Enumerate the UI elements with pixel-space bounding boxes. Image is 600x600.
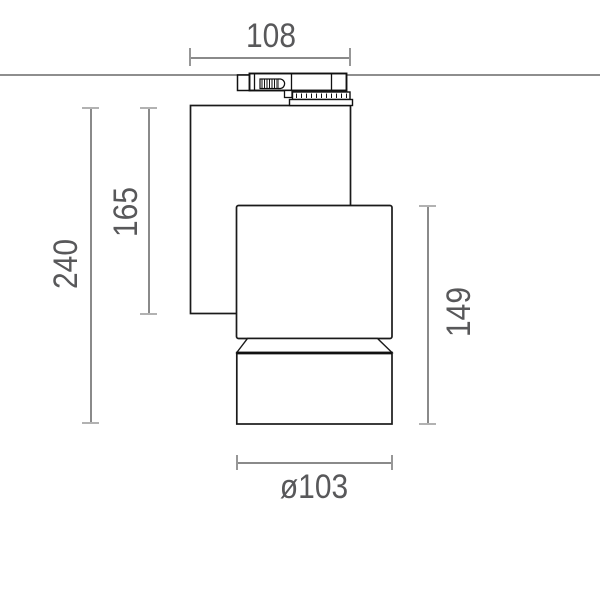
- dim-track-width-tick-left: [189, 48, 191, 66]
- dim-housing-height-tick-bottom: [140, 313, 157, 315]
- dim-track-width-label: 108: [271, 36, 328, 70]
- dim-barrel-diameter-tick-right: [391, 455, 393, 470]
- dim-head-height-line: [427, 206, 429, 424]
- screw-tip: [279, 79, 285, 89]
- dimension-drawing-canvas: 108 240 165 149 ø103: [0, 0, 600, 600]
- lens-ring: [237, 339, 392, 353]
- dim-overall-height-tick-top: [82, 107, 99, 109]
- dim-overall-height-label: 240: [66, 264, 123, 298]
- dim-head-height-label: 149: [459, 312, 516, 346]
- track-adapter: [238, 74, 353, 106]
- lamp-head: [237, 206, 393, 339]
- screw-thread-hatch: [262, 79, 277, 89]
- dial-base-band: [290, 100, 353, 106]
- dim-overall-height-tick-bottom: [82, 422, 99, 424]
- dim-track-width-tick-right: [349, 48, 351, 66]
- dim-housing-height-label: 165: [126, 212, 183, 246]
- dim-head-height-tick-top: [419, 205, 436, 207]
- adapter-collar: [285, 91, 293, 98]
- dim-housing-height-line: [148, 108, 150, 314]
- dim-barrel-diameter-tick-left: [236, 455, 238, 470]
- dim-head-height-tick-bottom: [419, 423, 436, 425]
- dim-barrel-diameter-line: [236, 462, 392, 464]
- lamp-barrel: [237, 353, 392, 425]
- dim-barrel-diameter-label: ø103: [314, 487, 392, 521]
- dim-housing-height-tick-top: [140, 107, 157, 109]
